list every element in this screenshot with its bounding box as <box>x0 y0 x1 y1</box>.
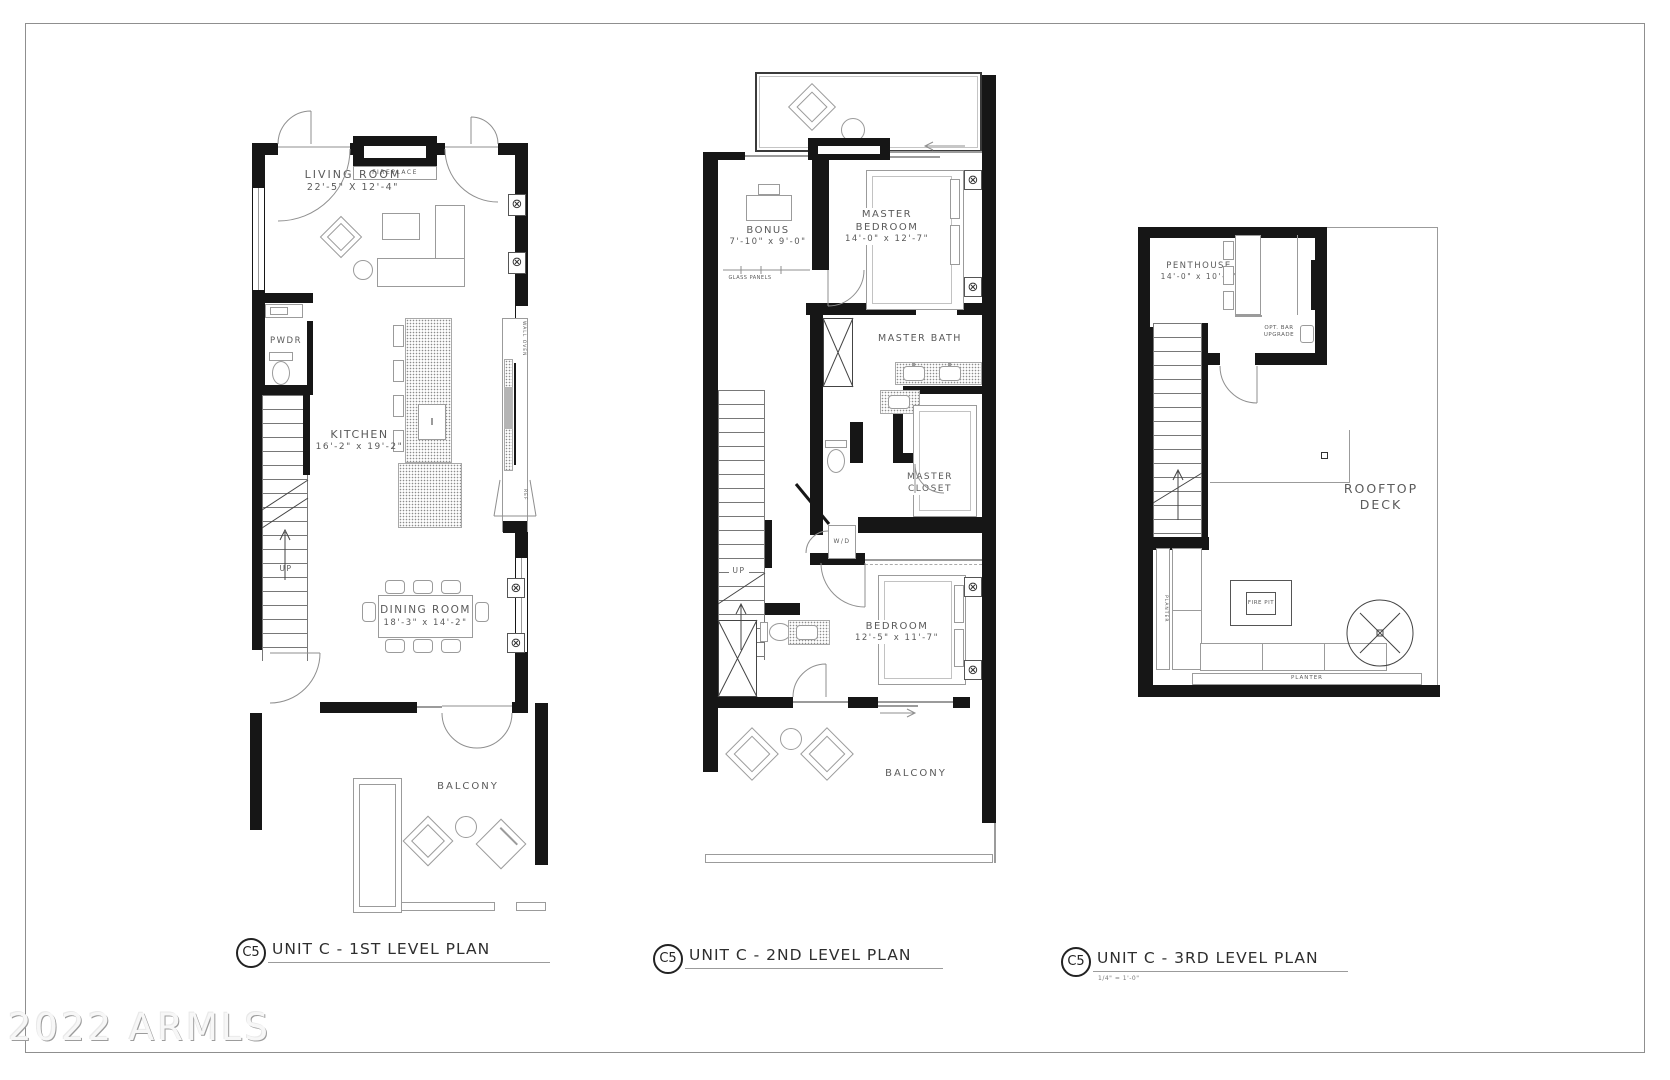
planter-left: PLANTER <box>1156 548 1170 670</box>
wall <box>1138 227 1150 329</box>
shower <box>718 620 757 697</box>
deck-edge <box>1437 227 1438 686</box>
pillow <box>954 629 964 667</box>
kitchen-casework: WALL OVEN REF <box>502 318 528 532</box>
shower <box>823 318 853 387</box>
wall <box>705 152 745 160</box>
sink <box>796 625 818 640</box>
plan-level2: BONUS 7'-10" x 9'-0" GLASS PANELS ⊗ ⊗ MA… <box>703 72 998 872</box>
wall <box>250 713 262 830</box>
bar-stool <box>1223 241 1234 260</box>
patio-chair <box>403 816 454 867</box>
toilet-bowl <box>827 449 845 473</box>
scale-note: 1/4" = 1'-0" <box>1098 975 1139 982</box>
appliance-front <box>504 387 513 429</box>
fireplace-box <box>364 146 426 158</box>
toilet-tank <box>760 622 768 642</box>
fixture-symbol: ⊗ <box>964 577 982 597</box>
bar-counter-foot <box>1235 315 1262 317</box>
tv-wall <box>1311 260 1315 310</box>
living-dims: 22'-5" X 12'-4" <box>278 182 428 194</box>
bar-sink <box>1300 325 1314 343</box>
seat-divider <box>1324 644 1325 670</box>
faucet <box>912 363 915 366</box>
title-underline <box>685 968 943 969</box>
planter-bottom: PLANTER <box>1192 673 1422 685</box>
plan-level3: PENTHOUSE 14'-0" x 10'-2" OPT. BAR UPGRA… <box>1138 225 1440 697</box>
ref-label: REF <box>514 479 527 511</box>
pillow <box>954 585 964 623</box>
fixture-symbol: ⊗ <box>508 194 526 216</box>
fixture-symbol: ⊗ <box>964 277 982 297</box>
closet-line <box>865 559 982 561</box>
dining-chair <box>362 602 376 622</box>
sink <box>903 366 925 381</box>
fixture-symbol: ⊗ <box>964 660 982 680</box>
wall <box>953 697 970 708</box>
wall <box>858 517 996 533</box>
wall <box>503 521 527 533</box>
master-bedroom-name: MASTER BEDROOM <box>831 208 943 234</box>
accent-chair <box>320 216 362 258</box>
kitchen-label: KITCHEN 16'-2" x 19'-2" <box>302 428 417 454</box>
toilet-tank <box>269 352 293 361</box>
slider-track <box>878 701 953 703</box>
wall <box>718 697 793 708</box>
washer-dryer: W/D <box>828 525 856 559</box>
window-line <box>745 155 809 157</box>
balcony-label: BALCONY <box>428 780 508 793</box>
living-room-label: LIVING ROOM 22'-5" X 12'-4" <box>278 168 428 195</box>
glass-panels-label: GLASS PANELS <box>721 275 779 282</box>
bonus-label: BONUS 7'-10" x 9'-0" <box>728 224 808 248</box>
fixture-symbol: ⊗ <box>964 170 982 190</box>
coffee-table <box>382 213 420 240</box>
wall <box>535 703 548 865</box>
door-frame <box>793 701 848 703</box>
plan1-title-block: C5 UNIT C - 1ST LEVEL PLAN <box>236 936 556 976</box>
dining-chair <box>475 602 489 622</box>
wall <box>812 160 829 270</box>
living-name: LIVING ROOM <box>278 168 428 182</box>
staircase <box>1153 323 1202 550</box>
wall <box>848 697 878 708</box>
balcony-rail <box>705 854 993 863</box>
wall <box>1138 327 1153 685</box>
bar-stool <box>1223 291 1234 310</box>
wall <box>512 702 528 713</box>
master-closet-label: MASTER CLOSET <box>901 472 959 495</box>
slider-leaf <box>878 705 918 707</box>
dining-name: DINING ROOM <box>380 604 471 618</box>
bar-stool <box>393 325 404 347</box>
planter-left-label: PLANTER <box>1158 579 1168 639</box>
patio-chair <box>800 727 854 781</box>
patio-chair <box>476 819 527 870</box>
deck-edge <box>1327 227 1438 228</box>
dining-chair <box>385 580 405 594</box>
fire-pit-label: FIRE PIT <box>1248 600 1274 607</box>
side-table <box>353 260 373 280</box>
sink <box>939 366 961 381</box>
wd-label: W/D <box>833 538 850 546</box>
fireplace-box <box>818 146 880 154</box>
fixture-symbol: ⊗ <box>508 252 526 274</box>
title-underline <box>1093 971 1348 972</box>
bar-stool <box>1223 266 1234 285</box>
dining-chair <box>441 639 461 653</box>
wall <box>1138 685 1440 697</box>
plan2-title-block: C5 UNIT C - 2ND LEVEL PLAN <box>653 942 953 982</box>
dining-chair <box>441 580 461 594</box>
bedroom-dims: 12'-5" x 11'-7" <box>845 633 949 644</box>
cabinet-line <box>1297 235 1298 315</box>
up-label: UP <box>729 566 749 576</box>
dining-chair <box>413 639 433 653</box>
fixture-symbol: ⊗ <box>507 578 525 598</box>
fire-pit: FIRE PIT <box>1246 592 1276 615</box>
bar-stool <box>393 395 404 417</box>
wall <box>262 293 313 303</box>
sectional-sofa <box>377 258 465 287</box>
dining-table: DINING ROOM 18'-3" x 14'-2" <box>378 595 473 638</box>
master-bedroom-dims: 14'-0" x 12'-7" <box>831 234 943 245</box>
detail-marker: C5 <box>236 938 266 968</box>
sectional-seating <box>1200 643 1387 671</box>
dining-dims: 18'-3" x 14'-2" <box>383 618 467 629</box>
wall <box>1202 323 1208 550</box>
wall <box>810 303 823 535</box>
planter-inner <box>359 784 396 907</box>
patio-table <box>455 816 477 838</box>
plan3-title: UNIT C - 3RD LEVEL PLAN <box>1097 949 1319 967</box>
fixture-symbol: ⊗ <box>507 633 525 653</box>
wall <box>1138 227 1327 238</box>
seat-divider <box>1173 610 1201 611</box>
deck-step <box>1349 430 1350 483</box>
deck-step <box>1210 482 1350 483</box>
slider-track <box>890 151 982 153</box>
master-bedroom-label: MASTER BEDROOM 14'-0" x 12'-7" <box>831 208 943 245</box>
plan2-title: UNIT C - 2ND LEVEL PLAN <box>689 946 911 964</box>
plan1-title: UNIT C - 1ST LEVEL PLAN <box>272 940 490 958</box>
kitchen-name: KITCHEN <box>302 428 417 442</box>
toilet-tank <box>825 440 847 448</box>
balcony-rail <box>516 902 546 911</box>
pillow <box>950 225 960 265</box>
wall <box>262 385 313 395</box>
title-underline <box>268 962 550 963</box>
floor-plan-sheet: { "watermark": "2022 ARMLS", "symbols": … <box>0 0 1670 1080</box>
bedroom-name: BEDROOM <box>845 620 949 633</box>
seat-divider <box>1262 644 1263 670</box>
plan-level1: FIREPLACE PWDR UP KITCHEN 16'-2" x 19'-2… <box>250 128 550 920</box>
closet-rod <box>865 564 982 565</box>
wall <box>982 75 996 823</box>
pillow <box>950 179 960 219</box>
desk-monitor <box>758 184 780 195</box>
kitchen-counter <box>398 463 462 528</box>
faucet <box>948 363 951 366</box>
patio-chair <box>725 727 779 781</box>
bonus-dims: 7'-10" x 9'-0" <box>728 237 808 248</box>
kitchen-dims: 16'-2" x 19'-2" <box>302 442 417 454</box>
detail-marker: C5 <box>1061 947 1091 977</box>
wall <box>850 422 863 463</box>
sink <box>888 395 910 409</box>
patio-table <box>780 728 802 750</box>
up-label: UP <box>276 564 296 574</box>
closet-shelving-inner <box>919 411 971 511</box>
watermark: 2022 ARMLS <box>8 1006 271 1049</box>
bar-stool <box>393 360 404 382</box>
plan3-title-block: C5 UNIT C - 3RD LEVEL PLAN 1/4" = 1'-0" <box>1061 945 1361 991</box>
sectional-seating <box>1172 548 1202 670</box>
opt-bar-label: OPT. BAR UPGRADE <box>1256 325 1302 339</box>
master-bath-label: MASTER BATH <box>875 333 965 345</box>
wall <box>703 152 718 772</box>
wall <box>437 143 445 155</box>
door-frame <box>417 706 442 708</box>
wall-edge <box>994 823 996 863</box>
wall-oven-label: WALL OVEN <box>504 321 526 357</box>
island-faucet <box>431 418 433 425</box>
wall <box>1315 227 1327 358</box>
toilet-bowl <box>272 361 290 385</box>
wall <box>307 321 313 395</box>
dining-chair <box>385 639 405 653</box>
roof-drain <box>1321 452 1328 459</box>
wall <box>1255 353 1327 365</box>
detail-marker: C5 <box>653 944 683 974</box>
bonus-name: BONUS <box>728 224 808 237</box>
bedroom-label: BEDROOM 12'-5" x 11'-7" <box>845 620 949 644</box>
planter-bottom-label: PLANTER <box>1291 675 1323 682</box>
dining-chair <box>413 580 433 594</box>
pwdr-sink-basin <box>270 307 288 315</box>
desk <box>746 195 792 221</box>
window-line <box>258 188 259 290</box>
balcony-label: BALCONY <box>879 767 953 780</box>
cabinet-line <box>514 363 516 465</box>
rooftop-deck-label: ROOFTOP DECK <box>1334 481 1428 514</box>
bar-counter <box>1235 235 1261 315</box>
slider-leaf <box>890 156 940 158</box>
balcony-rail <box>401 902 495 911</box>
pwdr-label: PWDR <box>262 336 310 347</box>
wall <box>320 702 417 713</box>
